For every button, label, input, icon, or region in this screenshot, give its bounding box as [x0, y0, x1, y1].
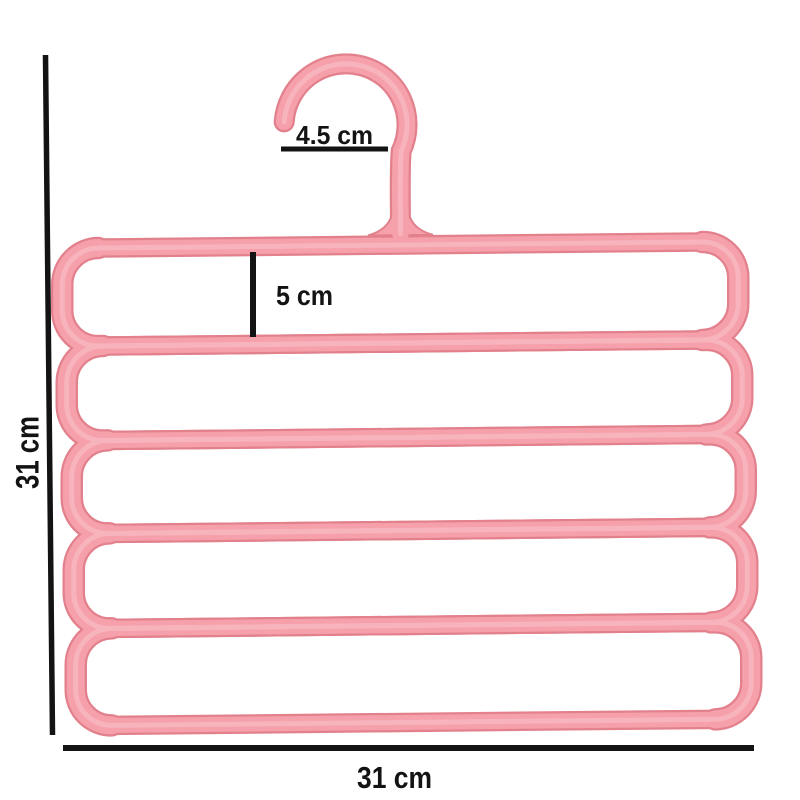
- svg-text:31 cm: 31 cm: [10, 416, 46, 489]
- svg-text:4.5 cm: 4.5 cm: [296, 120, 373, 150]
- svg-text:5 cm: 5 cm: [276, 280, 333, 311]
- svg-text:31 cm: 31 cm: [357, 761, 432, 795]
